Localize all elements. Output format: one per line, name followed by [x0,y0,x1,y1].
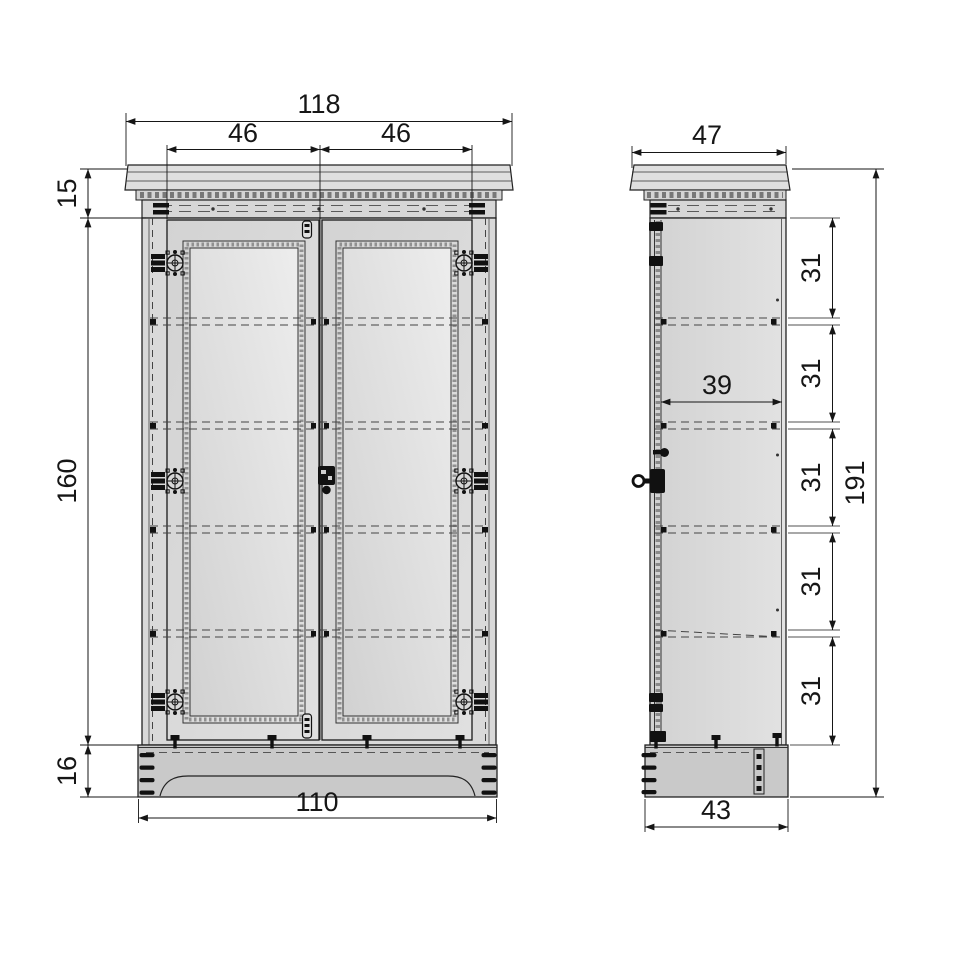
side-view: 47 39 31 31 31 31 31 191 43 [630,120,884,832]
door-right[interactable] [322,220,472,740]
front-frieze [142,200,496,218]
lock-key-side[interactable] [633,469,665,493]
door-left[interactable] [167,220,319,740]
drawing-canvas: 118 46 46 15 160 16 110 [0,0,960,960]
dim-label-shelf-spacing-5: 31 [796,676,826,706]
front-view: 118 46 46 15 160 16 110 [52,89,513,823]
dim-label-shelf-spacing-2: 31 [796,358,826,388]
front-cornice [125,165,513,200]
side-cornice [630,165,790,200]
dim-label-cornice-height: 15 [52,178,82,208]
gap-bolt-top [303,221,312,238]
side-panel [633,218,786,745]
gap-bolt-bottom [303,714,312,738]
dim-label-shelf-spacing-3: 31 [796,462,826,492]
dim-label-plinth-height: 16 [52,756,82,786]
dim-label-overall-height: 191 [840,460,870,505]
dim-label-top-depth: 47 [692,120,722,150]
technical-drawing-wardrobe: 118 46 46 15 160 16 110 [0,0,960,960]
dim-label-shelf-spacing-1: 31 [796,253,826,283]
key-ring [633,476,644,487]
side-frieze [650,200,786,218]
dim-label-overall-width: 118 [297,89,340,119]
dim-label-base-depth: 43 [701,795,731,825]
dim-label-base-width: 110 [295,787,338,817]
dim-label-shelf-spacing-4: 31 [796,566,826,596]
dim-label-carcass-height: 160 [52,458,82,503]
dim-label-interior-depth: 39 [702,370,732,400]
dim-label-door-right: 46 [381,118,411,148]
dim-label-door-left: 46 [228,118,258,148]
